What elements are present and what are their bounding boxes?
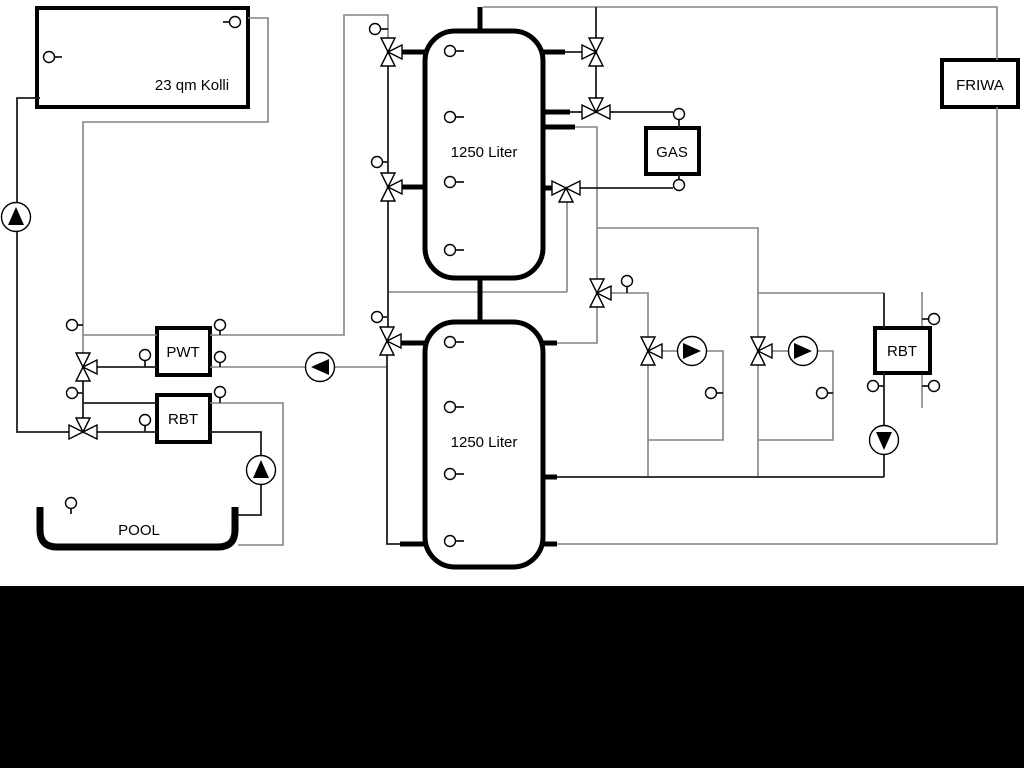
pool-pump-icon xyxy=(247,456,276,485)
gas-boiler-label: GAS xyxy=(656,144,688,161)
valve-tank1-top-charge xyxy=(381,38,402,66)
temperature-sensor-icon xyxy=(370,24,389,35)
temperature-sensor-icon xyxy=(140,415,151,433)
temperature-sensor-icon xyxy=(215,387,226,404)
pipe xyxy=(17,231,69,432)
buffer-tank-top-label: 1250 Liter xyxy=(451,144,518,161)
temperature-sensor-icon xyxy=(215,352,226,368)
friwa-station-label: FRIWA xyxy=(956,77,1004,94)
valve-mixing-main xyxy=(590,279,611,307)
pipe xyxy=(557,307,597,343)
collector-label: 23 qm Kolli xyxy=(155,77,229,94)
buffer-tank-bottom-label: 1250 Liter xyxy=(451,434,518,451)
hydraulic-schematic: 23 qm Kolli 1250 Liter 1250 Liter GAS FR… xyxy=(0,0,1024,768)
temperature-sensor-icon xyxy=(215,320,226,336)
temperature-sensor-icon xyxy=(706,388,724,399)
temperature-sensor-icon xyxy=(674,180,685,191)
pwt-charge-pump-icon xyxy=(306,353,335,382)
temperature-sensor-icon xyxy=(140,350,151,368)
temperature-sensor-icon xyxy=(372,312,388,323)
pool-label: POOL xyxy=(118,522,160,539)
schematic-canvas: 23 qm Kolli 1250 Liter 1250 Liter GAS FR… xyxy=(0,0,1024,768)
temperature-sensor-icon xyxy=(372,157,389,168)
letterbox-bar xyxy=(0,586,1024,768)
rbt-heating-pump-icon xyxy=(870,426,899,455)
pipe xyxy=(557,107,997,544)
valve-solar-pwt xyxy=(76,353,97,381)
pipe xyxy=(387,355,400,544)
pipe xyxy=(611,293,648,337)
heating-circuit-1-pump-icon xyxy=(678,337,707,366)
valve-gas-flow xyxy=(582,98,610,119)
pwt-label: PWT xyxy=(166,344,199,361)
temperature-sensor-icon xyxy=(922,314,940,325)
heating-circuit-2-pump-icon xyxy=(789,337,818,366)
valve-tank1-top-right xyxy=(582,38,603,66)
temperature-sensor-icon xyxy=(67,320,84,331)
temperature-sensor-icon xyxy=(817,388,834,399)
rbt-heating-label: RBT xyxy=(887,343,917,360)
solar-pump-icon xyxy=(2,203,31,232)
temperature-sensor-icon xyxy=(66,498,77,515)
valve-solar-return xyxy=(69,418,97,439)
temperature-sensor-icon xyxy=(622,276,633,294)
valve-heating-circuit-1 xyxy=(641,337,662,365)
temperature-sensor-icon xyxy=(67,388,84,399)
temperature-sensor-icon xyxy=(868,381,885,392)
valve-tank1-mid-charge xyxy=(381,173,402,201)
temperature-sensor-icon xyxy=(674,109,685,120)
rbt-pool-label: RBT xyxy=(168,411,198,428)
pipe xyxy=(210,432,261,456)
temperature-sensor-icon xyxy=(922,381,940,392)
valve-heating-circuit-2 xyxy=(751,337,772,365)
pipe xyxy=(238,484,261,515)
pipe xyxy=(575,127,597,279)
valve-tank2-top-charge xyxy=(380,327,401,355)
pipe xyxy=(17,98,40,203)
valve-gas-return xyxy=(552,181,580,202)
